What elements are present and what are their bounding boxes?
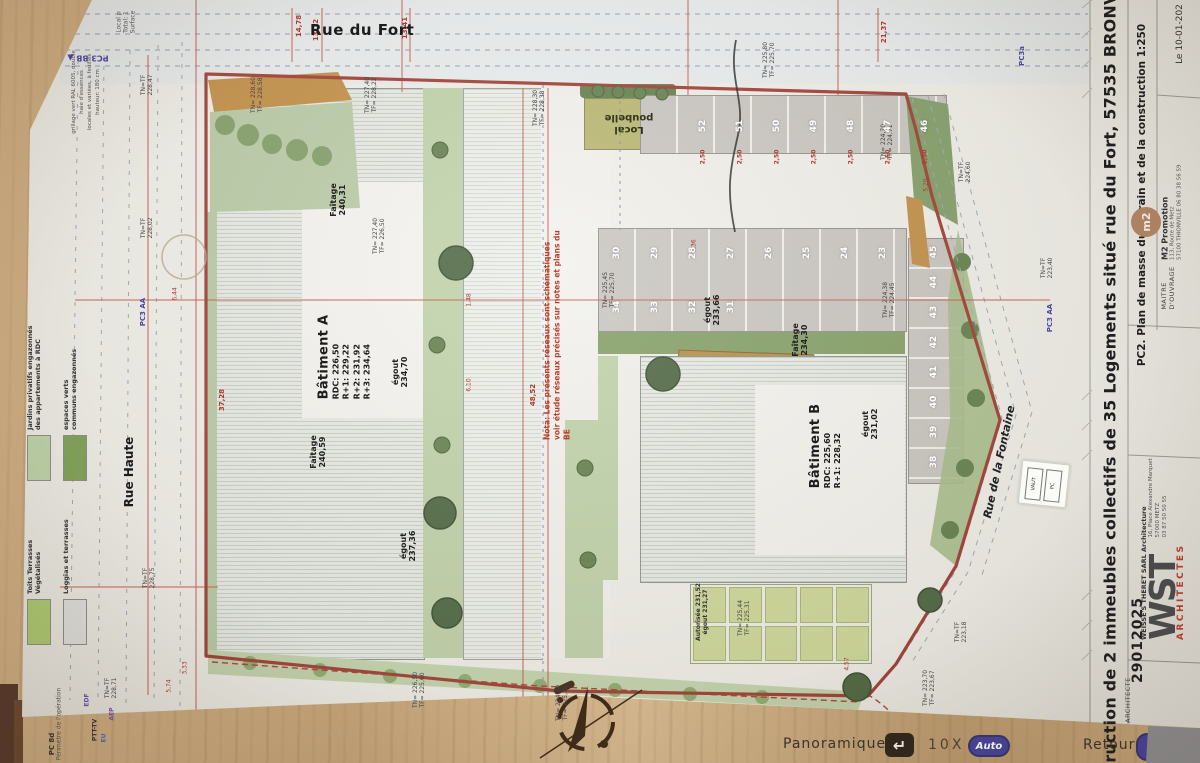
zoom-level-label: 10X <box>928 737 964 753</box>
building-b-name: Bâtiment B <box>808 404 823 489</box>
legend-label: Toits Terrasses Végétalisés <box>27 540 43 594</box>
back-label: Retour <box>1083 737 1135 753</box>
legend-swatch <box>63 599 87 645</box>
sticker-note: VAUT PC <box>1018 460 1070 509</box>
m2-logo: m2 <box>1131 207 1161 237</box>
legend-label: Jardins privatifs engazonnés des apparte… <box>27 325 43 430</box>
auto-button[interactable]: Auto <box>968 735 1010 757</box>
legend-swatch <box>27 435 51 481</box>
moa-name: M2 Promotion <box>1160 130 1169 260</box>
street-rue-haute: Rue Haute <box>123 437 137 508</box>
building-a-levels: RDC: 226,50R+1: 229,22R+2: 231,92R+3: 23… <box>332 315 374 400</box>
nota-text: Nota: Les présents réseaux sont schémati… <box>542 220 571 440</box>
magnifier-screen: Bâtiment A RDC: 226,50R+1: 229,22R+2: 23… <box>0 0 1200 763</box>
screen-corner <box>1146 726 1200 763</box>
building-b-labels: Bâtiment B RDC: 225,60R+1: 228,32 <box>808 404 844 489</box>
sticker-vaut: VAUT <box>1030 477 1037 491</box>
legend-label: espaces verts communs engazonnés <box>63 349 79 430</box>
street-rue-du-fort: Rue du Fort <box>310 22 414 39</box>
legend-item: Toits Terrasses Végétalisés <box>27 495 51 645</box>
mode-label: Panoramique <box>783 736 886 752</box>
architecte-label: ARCHITECTE <box>1124 677 1132 723</box>
back-key-button[interactable]: ↵ <box>885 733 914 757</box>
legend-item: espaces verts communs engazonnés <box>63 311 87 481</box>
wst-logo: WST ARCHITECTES <box>1148 543 1186 640</box>
legend-swatch <box>63 435 87 481</box>
legend-swatch <box>27 599 51 645</box>
building-a-name: Bâtiment A <box>317 315 332 400</box>
doc-date: Le 10-01-202 <box>1175 4 1185 64</box>
project-title: struction de 2 immeubles collectifs de 3… <box>1101 0 1120 763</box>
moa-label: MAITRE D'OUVRAGE <box>1160 266 1176 309</box>
building-b-levels: RDC: 225,60R+1: 228,32 <box>823 404 844 489</box>
legend-item: Jardins privatifs engazonnés des apparte… <box>27 311 51 481</box>
doc-reference: PC2. Plan de masse du terrain et de la c… <box>1136 24 1148 366</box>
sticker-pc: PC <box>1050 482 1057 489</box>
moa-block: M2 Promotion 113, Route de Metz 57100 TH… <box>1160 130 1183 260</box>
local-poubelle-label: Local poubelle <box>584 98 674 148</box>
legend-label: Loggias et terrasses <box>63 519 71 594</box>
architect-address: 16, Place Alexandre Marquet 57000 METZ 0… <box>1148 458 1169 537</box>
architect-block: WEISSE'S THERET SARL Architecture WST AR… <box>1140 440 1186 640</box>
legend-item: Loggias et terrasses <box>63 495 87 645</box>
building-a-labels: Bâtiment A RDC: 226,50R+1: 229,22R+2: 23… <box>317 315 374 400</box>
plan-legend: Toits Terrasses VégétalisésJardins priva… <box>27 315 87 645</box>
